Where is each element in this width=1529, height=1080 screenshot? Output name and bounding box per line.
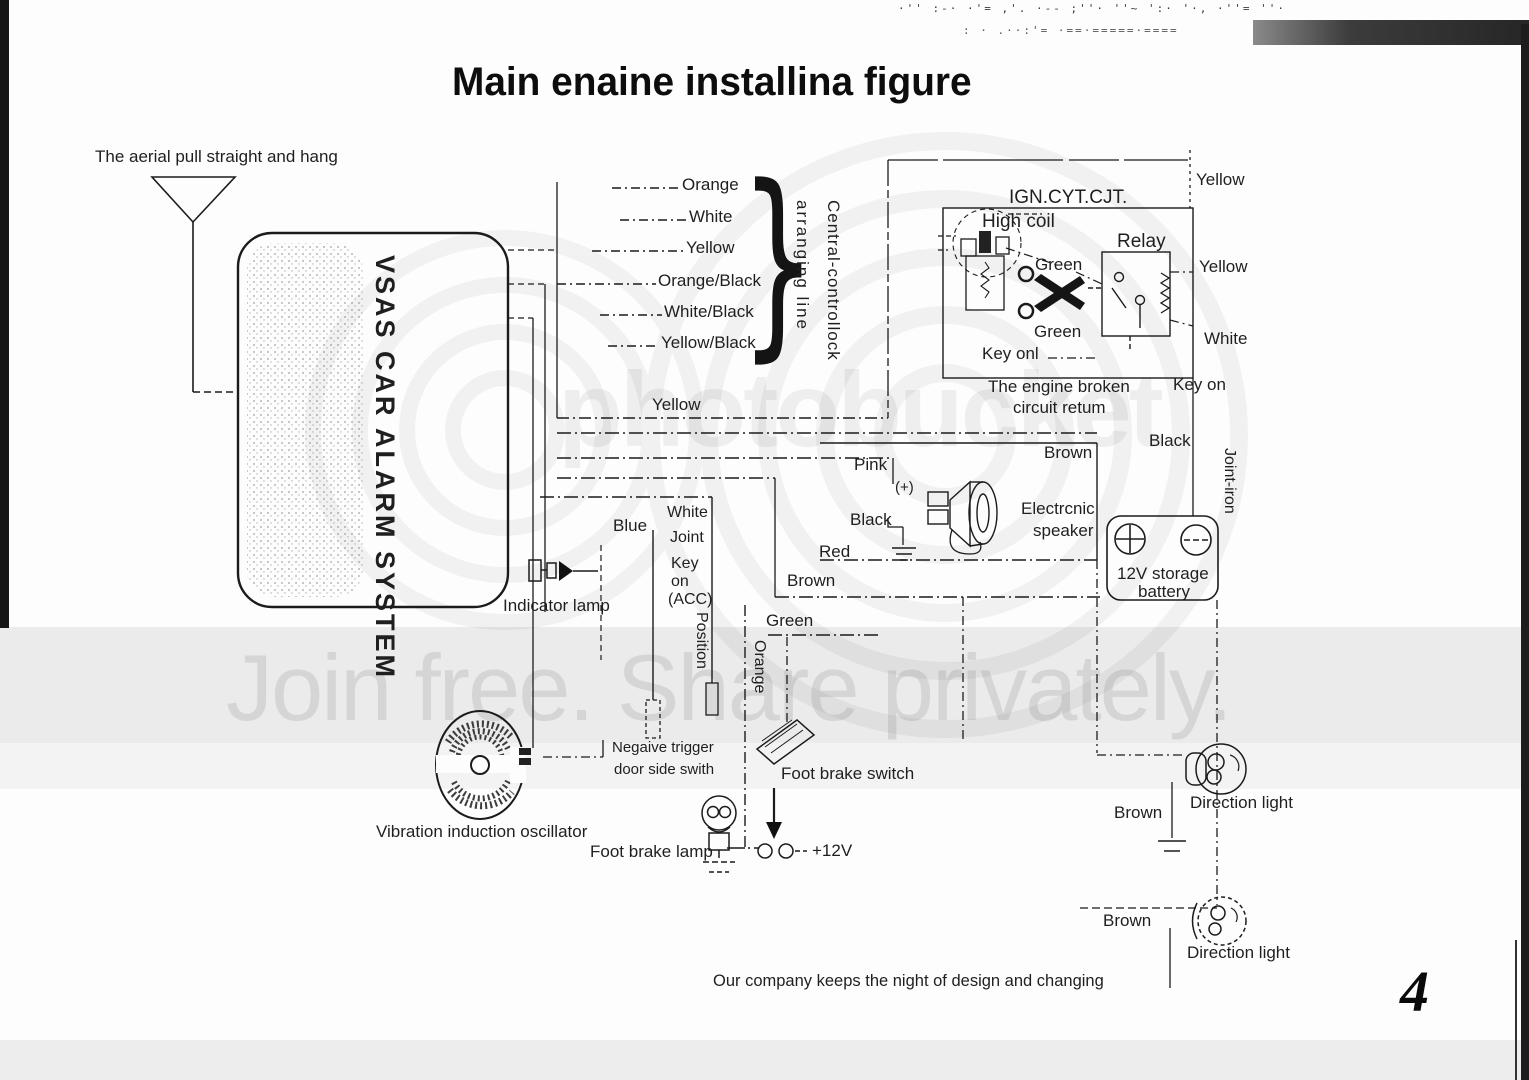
scan-noise-row-1: ·'' :-· ·'= ,'. ·-- ;''· ''~ ':· '·, ·''… bbox=[898, 2, 1286, 15]
joint-label: Joint bbox=[670, 529, 704, 547]
black-speaker-label: Black bbox=[850, 510, 892, 530]
scan-noise-row-2: : · .··:'= ·==·=====·==== bbox=[963, 24, 1179, 37]
plus-label: (+) bbox=[895, 479, 914, 496]
indicator-lamp-label: Indicator lamp bbox=[503, 596, 610, 616]
engine-caption-2: circuit retum bbox=[1013, 398, 1106, 418]
brown-dir2-label: Brown bbox=[1103, 911, 1151, 931]
brown-dir1-label: Brown bbox=[1114, 803, 1162, 823]
battery-label-2: battery bbox=[1138, 582, 1190, 602]
white-joint-label: White bbox=[667, 504, 708, 522]
brown-speaker-label: Brown bbox=[1044, 443, 1092, 463]
speaker-label-1: Electrcnic bbox=[1021, 499, 1095, 519]
pink-label: Pink bbox=[854, 455, 887, 475]
high-coil-label: High coil bbox=[982, 211, 1055, 233]
green-mid-label: Green bbox=[766, 611, 813, 631]
yellow-side-label: Yellow bbox=[1199, 257, 1248, 277]
foot-brake-lamp-label: Foot brake lamp bbox=[590, 842, 713, 862]
battery-label-1: 12V storage bbox=[1117, 564, 1209, 584]
green-top-label: Green bbox=[1035, 255, 1082, 275]
page-title: Main enaine installina figure bbox=[452, 60, 972, 105]
yellow-bus-label: Yellow bbox=[652, 395, 701, 415]
vibration-oscillator-icon bbox=[436, 711, 526, 819]
scan-smudge-bar bbox=[1253, 20, 1529, 45]
down-arrow-icon bbox=[766, 788, 782, 839]
wire-label-white: White bbox=[689, 207, 732, 227]
footer-note: Our company keeps the night of design an… bbox=[713, 972, 1104, 991]
position-label: Position bbox=[692, 612, 710, 669]
red-label: Red bbox=[819, 542, 850, 562]
aerial-label: The aerial pull straight and hang bbox=[95, 147, 338, 167]
green-bottom-label: Green bbox=[1034, 322, 1081, 342]
scanned-page: photobucket Join free. Share privately. bbox=[0, 0, 1529, 1080]
harness-group-label-1: Central-controllock bbox=[823, 200, 843, 361]
brown-mid-label: Brown bbox=[787, 571, 835, 591]
engine-caption-1: The engine broken bbox=[988, 377, 1130, 397]
ground-icon-dir1 bbox=[1158, 841, 1186, 851]
neg-trigger-label-2: door side swith bbox=[614, 761, 714, 778]
joint-iron-label: Joint-iron bbox=[1220, 448, 1238, 514]
speaker-label-2: speaker bbox=[1033, 521, 1093, 541]
black-battery-label: Black bbox=[1149, 431, 1191, 451]
brake-pedal-icon bbox=[757, 720, 814, 764]
key-acc-label-3: (ACC) bbox=[668, 591, 712, 609]
key-on-side-label: Key on bbox=[1173, 375, 1226, 395]
aerial-antenna-icon bbox=[152, 177, 236, 392]
key-acc-label-1: Key bbox=[671, 555, 699, 573]
wire-label-yellow: Yellow bbox=[686, 238, 735, 258]
scan-edge-right bbox=[1521, 24, 1529, 1080]
neg-trigger-label-1: Negaive trigger bbox=[612, 739, 714, 756]
wire-label-orange: Orange bbox=[682, 175, 739, 195]
harness-group-label-2: arranging line bbox=[792, 200, 812, 331]
key-on-label: Key onl bbox=[982, 344, 1039, 364]
scan-edge-left bbox=[0, 0, 9, 628]
plus-12v-label: +12V bbox=[812, 841, 852, 861]
direction-light-1-label: Direction light bbox=[1190, 793, 1293, 813]
ign-title: IGN.CYT.CJT. bbox=[1009, 187, 1127, 209]
blue-label: Blue bbox=[613, 516, 647, 536]
alarm-unit-label: VSAS CAR ALARM SYSTEM bbox=[369, 255, 400, 680]
relay-label: Relay bbox=[1117, 231, 1166, 253]
yellow-top-label: Yellow bbox=[1196, 170, 1245, 190]
vibration-label: Vibration induction oscillator bbox=[376, 822, 587, 842]
white-side-label: White bbox=[1204, 329, 1247, 349]
scan-edge-right-inner bbox=[1515, 940, 1517, 1080]
orange-vertical-label: Orange bbox=[750, 640, 768, 693]
direction-light-2-icon bbox=[1193, 897, 1247, 945]
page-number: 4 bbox=[1400, 958, 1429, 1025]
foot-brake-switch-label: Foot brake switch bbox=[781, 764, 914, 784]
key-acc-label-2: on bbox=[671, 573, 689, 591]
direction-light-2-label: Direction light bbox=[1187, 943, 1290, 963]
direction-light-1-icon bbox=[1186, 744, 1246, 794]
